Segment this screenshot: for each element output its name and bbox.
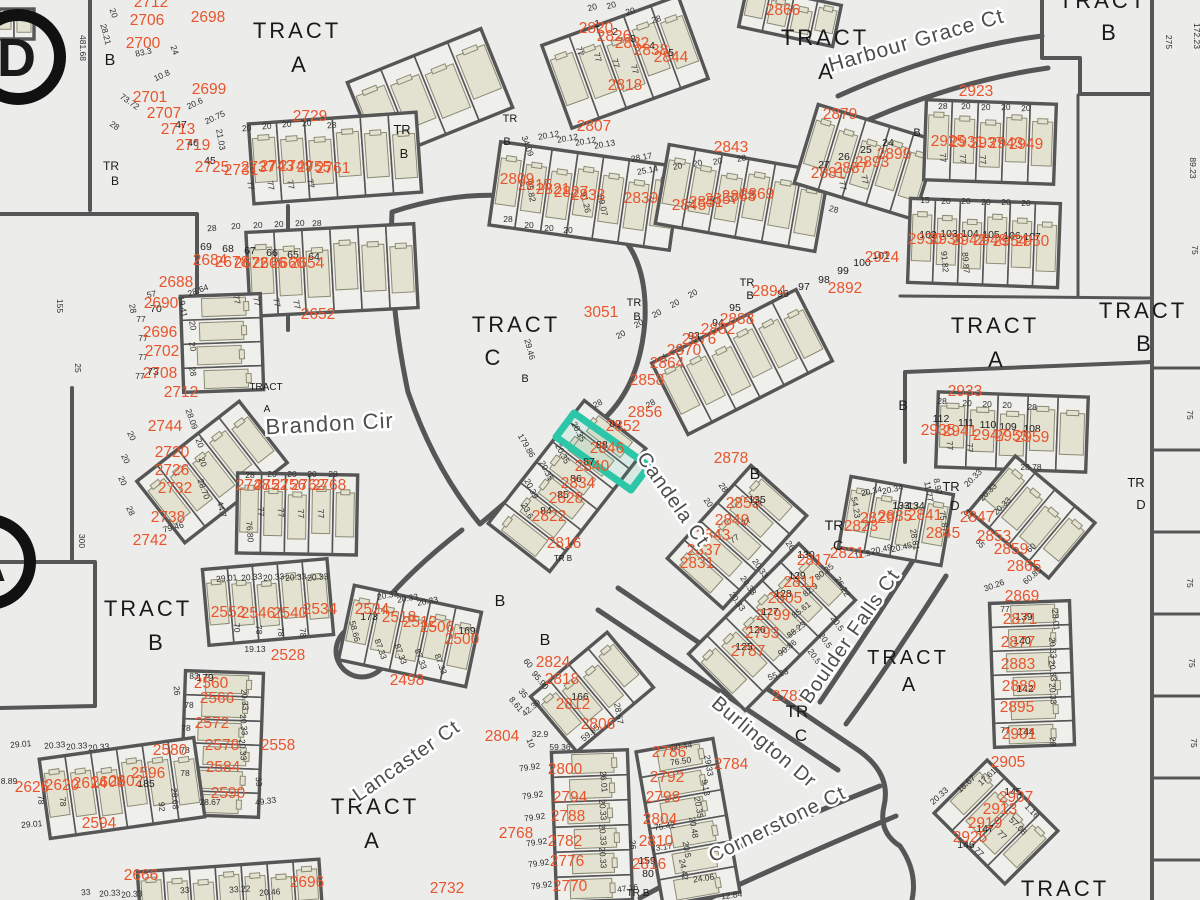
dimension-label: 28 <box>187 366 199 377</box>
dimension-label: 12.84 <box>720 889 743 900</box>
dimension-label: 78 <box>184 700 194 710</box>
dimension-label: 77 <box>256 507 267 518</box>
dimension-label: 481.68 <box>78 35 88 61</box>
building-footprint-step <box>711 825 718 836</box>
building-footprint-step <box>1012 115 1022 120</box>
tract-label: B <box>746 290 753 302</box>
dimension-label: 28 <box>207 223 217 233</box>
dimension-label: 28 <box>312 218 322 228</box>
tract-label: TR <box>942 479 959 494</box>
dimension-label: 75 <box>1185 578 1195 588</box>
parcel-number-label: 2923 <box>959 83 993 100</box>
parcel-number-label: 2817 <box>797 552 831 569</box>
dimension-label: 78 <box>298 628 309 639</box>
parcel-number-label: 2901 <box>1002 726 1036 743</box>
tract-label: C <box>485 345 504 370</box>
parcel-number-label: 2700 <box>126 35 161 52</box>
building-footprint-step <box>1042 222 1052 227</box>
dimension-label: 26 <box>172 686 183 697</box>
dimension-label: 28.01 <box>1050 609 1062 631</box>
dimension-label: 33 <box>81 887 91 898</box>
parcel-number-label: 2788 <box>551 808 585 825</box>
sheet-letter-text: A <box>0 533 9 593</box>
parcel-number-label: 2500 <box>445 631 480 648</box>
dimension-label: 20 <box>1001 197 1011 207</box>
building-footprint-step <box>1053 705 1058 714</box>
dimension-label: 20.46 <box>259 886 281 897</box>
dimension-label: 20 <box>981 102 991 112</box>
parcel-number-label: 2843 <box>714 139 748 156</box>
dimension-label: 78 <box>180 768 190 778</box>
dimension-label: 26.01 <box>598 771 610 793</box>
dimension-label: 20.33 <box>597 847 609 869</box>
tract-label: B <box>898 397 907 413</box>
building-footprint-step <box>610 883 615 893</box>
dimension-label: 20 <box>563 225 573 235</box>
dimension-label: 20 <box>672 160 683 172</box>
tract-label: TRACT <box>104 596 192 621</box>
building-footprint-step <box>993 214 1003 219</box>
dimension-label: 20 <box>295 218 305 228</box>
dimension-label: 70 <box>232 623 243 634</box>
parcel-number-label: 2698 <box>191 9 225 26</box>
parcel-number-label: 2566 <box>200 690 234 707</box>
building-footprint <box>197 345 242 365</box>
tract-label: TR <box>740 277 755 289</box>
dimension-label: 76.80 <box>244 521 256 543</box>
dimension-label: 89.23 <box>1188 157 1198 179</box>
building-footprint-step <box>49 769 60 775</box>
parcel-number-label: 2799 <box>756 607 790 624</box>
parcel-number-label: 2960 <box>1015 233 1050 250</box>
parcel-number-label: 2869 <box>1005 588 1039 605</box>
parcel-number-label: 2859 <box>994 541 1028 558</box>
parcel-number-label: 2666 <box>124 867 158 884</box>
dimension-label: 28 <box>503 214 513 224</box>
building-footprint-step <box>634 180 645 186</box>
building-footprint-step <box>947 403 959 408</box>
dimension-label: 20.33 <box>99 887 121 898</box>
parcel-number-label: 2877 <box>1001 634 1035 651</box>
tract-label: TR <box>786 702 809 721</box>
dimension-label: 29.01 <box>21 818 43 830</box>
dimension-label: 20 <box>242 123 253 134</box>
building-footprint-step <box>715 877 722 888</box>
dimension-label: 78 <box>181 723 191 733</box>
dimension-label: 78 <box>58 797 69 808</box>
parcel-number-label: 2761 <box>316 160 350 177</box>
dimension-label: 20 <box>941 196 951 206</box>
parcel-number-label: 2895 <box>1000 699 1034 716</box>
parcel-map-canvas[interactable]: 481.6815525300275172.2389.23757575757528… <box>0 0 1200 900</box>
parcel-number-label: 2878 <box>714 450 748 467</box>
parcel-number-label: 2708 <box>143 365 177 382</box>
tract-label: B <box>105 52 116 69</box>
parcel-number-label: 2726 <box>155 462 189 479</box>
tract-label: A <box>902 674 918 696</box>
dimension-label: 20 <box>961 196 971 206</box>
building-footprint-step <box>240 776 245 785</box>
parcel-number-label: 2879 <box>823 106 857 123</box>
dimension-label: 77 <box>231 294 243 305</box>
dimension-label: 20.33 <box>238 714 250 736</box>
dimension-label: 20.33 <box>241 571 263 583</box>
building-footprint-step <box>612 758 617 768</box>
parcel-number-label: 2806 <box>581 716 615 733</box>
tract-label: B <box>503 136 510 148</box>
tract-label: TR B <box>627 888 650 899</box>
dimension-label: 20.33 <box>1047 683 1059 705</box>
parcel-number-label: 3051 <box>584 304 618 321</box>
parcel-number-label: 2792 <box>650 769 684 786</box>
parcel-number-label: 2959 <box>1015 429 1049 446</box>
building-footprint <box>362 244 386 291</box>
parcel-number-label: 2824 <box>536 654 571 671</box>
parcel-number-label: 2828 <box>549 490 583 507</box>
parcel-number-label: 2807 <box>577 118 611 135</box>
parcel-number-label: 2899 <box>877 146 911 163</box>
dimension-label: 77 <box>285 179 297 190</box>
dimension-label: 29.01 <box>216 572 238 584</box>
dimension-label: 77 <box>136 314 146 324</box>
tract-label: TRACT <box>951 313 1039 338</box>
parcel-number-label: 2720 <box>155 444 190 461</box>
building-footprint-step <box>239 350 244 359</box>
parcel-number-label: 2811 <box>783 574 816 591</box>
tract-label: TR <box>1127 475 1144 490</box>
building-footprint <box>364 132 389 177</box>
parcel-number-label: 2701 <box>133 89 167 106</box>
dimension-label: 20 <box>187 341 199 352</box>
tract-label: A <box>291 52 309 77</box>
building-footprint-step <box>339 240 350 246</box>
parcel-number-label: 2894 <box>752 283 787 300</box>
parcel-number-label: 2729 <box>293 108 327 125</box>
parcel-number-label: 2712 <box>164 384 198 401</box>
building-footprint-step <box>918 212 928 217</box>
parcel-number-label: 2833 <box>571 187 605 204</box>
dimension-label: 59.36 <box>549 742 571 752</box>
tract-label: B <box>495 593 506 610</box>
building-footprint-step <box>301 866 311 872</box>
building-footprint-step <box>967 219 977 224</box>
building-footprint-step <box>75 768 86 774</box>
lot-number-label: 97 <box>798 281 810 293</box>
parcel-number-label: 2869 <box>740 186 774 203</box>
parcel-number-label: 2528 <box>271 647 305 664</box>
building-footprint-step <box>960 116 970 121</box>
parcel-number-label: 2744 <box>148 418 183 435</box>
tract-label: B <box>913 127 920 139</box>
building-footprint-step <box>244 302 249 311</box>
building-footprint-step <box>224 872 234 878</box>
dimension-label: 77 <box>271 297 283 308</box>
dimension-label: 33 <box>180 885 190 896</box>
building-footprint-step <box>881 495 892 502</box>
tract-label: B <box>1136 331 1154 356</box>
dimension-label: 20.33 <box>66 740 88 752</box>
parcel-number-label: 2855 <box>726 495 760 512</box>
parcel-number-label: 2840 <box>575 458 610 475</box>
tract-label: B <box>633 311 640 323</box>
tract-label: B <box>750 466 761 483</box>
parcel-number-label: 2738 <box>151 509 185 526</box>
dimension-label: 89.87 <box>960 252 972 274</box>
sheet-letter-text: D <box>0 28 39 88</box>
parcel-number-label: 2839 <box>624 190 658 207</box>
dimension-label: 20.33 <box>88 741 110 753</box>
parcel-number-label: 2865 <box>1007 558 1041 575</box>
dimension-label: 155 <box>55 299 65 313</box>
building-footprint-step <box>342 129 353 135</box>
tract-label: TRACT <box>249 382 282 393</box>
parcel-number-label: 2688 <box>159 274 193 291</box>
parcel-number-label: 2590 <box>211 785 246 802</box>
building-footprint <box>334 243 358 290</box>
dimension-label: 28 <box>327 120 338 131</box>
dimension-label: 275 <box>1164 35 1174 49</box>
parcel-number-label: 2822 <box>532 508 566 525</box>
dimension-label: 20.33 <box>121 888 143 899</box>
dimension-label: 77 <box>945 441 956 452</box>
dimension-label: 20.33 <box>1047 660 1059 682</box>
parcel-number-label: 2793 <box>745 625 779 642</box>
tract-label: TRACT <box>253 18 341 43</box>
dimension-label: 20 <box>544 223 554 233</box>
tract-label: C <box>833 537 843 553</box>
building-footprint-step <box>395 243 406 249</box>
dimension-label: 20 <box>187 320 199 331</box>
building-footprint-step <box>258 135 269 141</box>
dimension-label: 77 <box>276 508 287 519</box>
building-footprint-step <box>241 326 246 335</box>
tract-label: B <box>1101 20 1119 45</box>
parcel-number-label: 2702 <box>145 343 179 360</box>
parcel-number-label: 2732 <box>158 480 192 497</box>
parcel-number-label: 2798 <box>646 789 680 806</box>
building-footprint <box>1059 413 1084 455</box>
dimension-label: 20 <box>262 121 273 132</box>
tract-label: D <box>1136 497 1145 512</box>
building-footprint-step <box>286 136 297 142</box>
parcel-number-label: 2816 <box>632 856 666 873</box>
dimension-label: 33 <box>254 777 265 788</box>
dimension-label: 75 <box>1190 245 1200 255</box>
dimension-label: 20 <box>712 155 723 167</box>
parcel-number-label: 2800 <box>548 761 583 778</box>
dimension-label: 20 <box>692 157 703 169</box>
tract-label: TRACT <box>472 312 560 337</box>
parcel-number-label: 2866 <box>766 2 800 19</box>
tract-label: TRACT <box>331 794 419 819</box>
parcel-number-label: 2584 <box>206 759 241 776</box>
building-footprint-step <box>934 112 944 117</box>
building-footprint <box>390 246 414 293</box>
tract-label: TR <box>103 159 119 173</box>
parcel-number-label: 2786 <box>652 744 686 761</box>
tract-label: D <box>950 498 959 513</box>
dimension-label: 75 <box>1187 658 1197 668</box>
dimension-label: 28 <box>938 101 948 111</box>
parcel-number-label: 2883 <box>1001 656 1035 673</box>
dimension-label: 77 <box>958 154 969 165</box>
parcel-number-label: 2578 <box>205 737 239 754</box>
parcel-number-label: 2707 <box>147 105 181 122</box>
dimension-label: 78 <box>276 627 287 638</box>
parcel-number-label: 2558 <box>261 737 295 754</box>
parcel-number-label: 2787 <box>731 643 765 660</box>
dimension-label: 77 <box>296 509 307 520</box>
building-footprint-step <box>1037 406 1049 411</box>
dimension-label: 75 <box>1185 410 1195 420</box>
building-footprint <box>199 321 244 341</box>
dimension-label: 28.78 <box>1020 462 1042 472</box>
parcel-number-label: 2594 <box>82 815 117 832</box>
building-footprint-step <box>198 879 208 885</box>
parcel-number-label: 2804 <box>485 728 520 745</box>
parcel-number-label: 2812 <box>556 696 590 713</box>
dimension-label: 20 <box>1001 102 1011 112</box>
parcel-number-label: 2933 <box>948 383 982 400</box>
dimension-label: 20.33 <box>597 824 609 846</box>
tract-label: TR <box>825 517 844 533</box>
building-footprint-step <box>370 130 381 136</box>
dimension-label: 20 <box>981 197 991 207</box>
dimension-label: 92 <box>157 802 168 813</box>
dimension-label: 75 <box>1189 738 1199 748</box>
tract-label: A <box>988 347 1006 372</box>
parcel-number-label: 2844 <box>654 49 689 66</box>
building-footprint-step <box>531 162 542 168</box>
parcel-number-label: 2768 <box>312 477 346 494</box>
parcel-number-label: 2719 <box>176 137 210 154</box>
tract-label: TR <box>503 113 518 125</box>
building-footprint-step <box>614 833 619 843</box>
parcel-number-label: 2713 <box>161 121 195 138</box>
building-footprint-step <box>276 874 286 880</box>
dimension-label: 29.01 <box>10 738 32 750</box>
parcel-number-label: 2888 <box>720 311 754 328</box>
parcel-number-label: 2794 <box>553 789 588 806</box>
parcel-number-label: 2626 <box>15 779 49 796</box>
parcel-number-label: 2905 <box>991 754 1025 771</box>
parcel-number-label: 2818 <box>545 671 579 688</box>
dimension-label: 20 <box>524 220 534 230</box>
building-footprint-step <box>1038 119 1048 124</box>
dimension-label: 20.33 <box>597 799 609 821</box>
dimension-label: 26 <box>628 840 639 851</box>
parcel-number-label: 2699 <box>192 81 226 98</box>
dimension-label: 20.33 <box>285 571 307 583</box>
dimension-label: 28 <box>937 396 947 406</box>
building-footprint-step <box>986 120 996 125</box>
parcel-number-label: 2852 <box>606 418 640 435</box>
dimension-label: 77 <box>978 155 989 166</box>
tract-label: TRACT <box>1059 0 1147 13</box>
parcel-number-label: 2949 <box>1009 136 1043 153</box>
parcel-number-label: 2805 <box>768 590 802 607</box>
parcel-number-label: 2620 <box>45 777 80 794</box>
dimension-label: 28 <box>127 303 139 314</box>
tract-label: C <box>795 726 807 745</box>
parcel-number-label: 2770 <box>553 878 588 895</box>
parcel-number-label: 2847 <box>960 509 994 526</box>
parcel-number-label: 2776 <box>550 853 584 870</box>
tract-label: TRACT <box>867 647 949 669</box>
parcel-number-label: 2889 <box>1002 678 1036 695</box>
tract-label: TRACT <box>1099 298 1187 323</box>
building-footprint-step <box>612 858 617 868</box>
tract-label: TRACT <box>1021 876 1109 900</box>
tract-label: B <box>540 632 551 649</box>
building-footprint-step <box>250 873 260 879</box>
parcel-number-label: 2768 <box>499 825 533 842</box>
parcel-number-label: 2858 <box>630 372 664 389</box>
parcel-number-label: 2892 <box>828 280 862 297</box>
parcel-number-label: 2654 <box>290 255 325 272</box>
dimension-label: 19.13 <box>244 644 266 654</box>
tract-label: B <box>148 630 166 655</box>
parcel-number-label: 2831 <box>680 555 714 572</box>
dimension-label: 77 <box>265 180 277 191</box>
parcel-number-label: 2534 <box>303 601 338 618</box>
dimension-label: 20 <box>282 119 293 130</box>
dimension-label: 20.33 <box>239 689 251 711</box>
dimension-label: 20 <box>1021 103 1031 113</box>
dimension-label: 28 <box>1048 737 1059 748</box>
building-footprint-step <box>506 156 517 162</box>
dimension-label: 15 <box>920 195 930 205</box>
parcel-number-label: 2696 <box>290 874 324 891</box>
parcel-number-label: 2841 <box>908 507 942 524</box>
dimension-label: 77 <box>965 443 976 454</box>
dimension-label: 77 <box>251 296 263 307</box>
dimension-label: 20.33 <box>307 571 329 583</box>
dimension-label: 77 <box>316 509 327 520</box>
building-footprint-step <box>557 169 568 175</box>
parcel-number-label: 2925 <box>953 829 987 846</box>
dimension-label: 20 <box>274 219 284 229</box>
parcel-number-label: 2818 <box>608 77 642 94</box>
parcel-number-label: 2924 <box>865 249 900 266</box>
dimension-label: 20.33 <box>263 571 285 583</box>
tract-label: A <box>364 828 382 853</box>
parcel-number-label: 2712 <box>134 0 168 11</box>
parcel-number-label: 2546 <box>241 605 275 622</box>
dimension-label: 20 <box>1021 198 1031 208</box>
parcel-number-label: 2782 <box>548 833 582 850</box>
parcel-map[interactable]: 481.6815525300275172.2389.23757575757528… <box>0 0 1200 900</box>
dimension-label: 20 <box>253 220 263 230</box>
building-footprint <box>204 369 249 389</box>
dimension-label: 172.23 <box>1192 23 1200 49</box>
tract-label: TR <box>393 122 410 137</box>
tract-label: B <box>521 373 528 385</box>
tract-label: B <box>111 174 119 188</box>
building-footprint-step <box>255 244 266 250</box>
parcel-number-label: 2580 <box>153 742 188 759</box>
building-footprint-step <box>126 758 137 764</box>
dimension-label: 25 <box>73 363 83 373</box>
dimension-label: 20.33 <box>44 739 66 751</box>
parcel-number-label: 2845 <box>926 525 960 542</box>
building-footprint-step <box>314 137 325 143</box>
building-footprint-step <box>172 878 182 884</box>
parcel-number-label: 2572 <box>195 715 229 732</box>
parcel-number-label: 2816 <box>547 535 581 552</box>
building-footprint-step <box>1007 411 1019 416</box>
dimension-label: 28.68 <box>169 788 181 810</box>
